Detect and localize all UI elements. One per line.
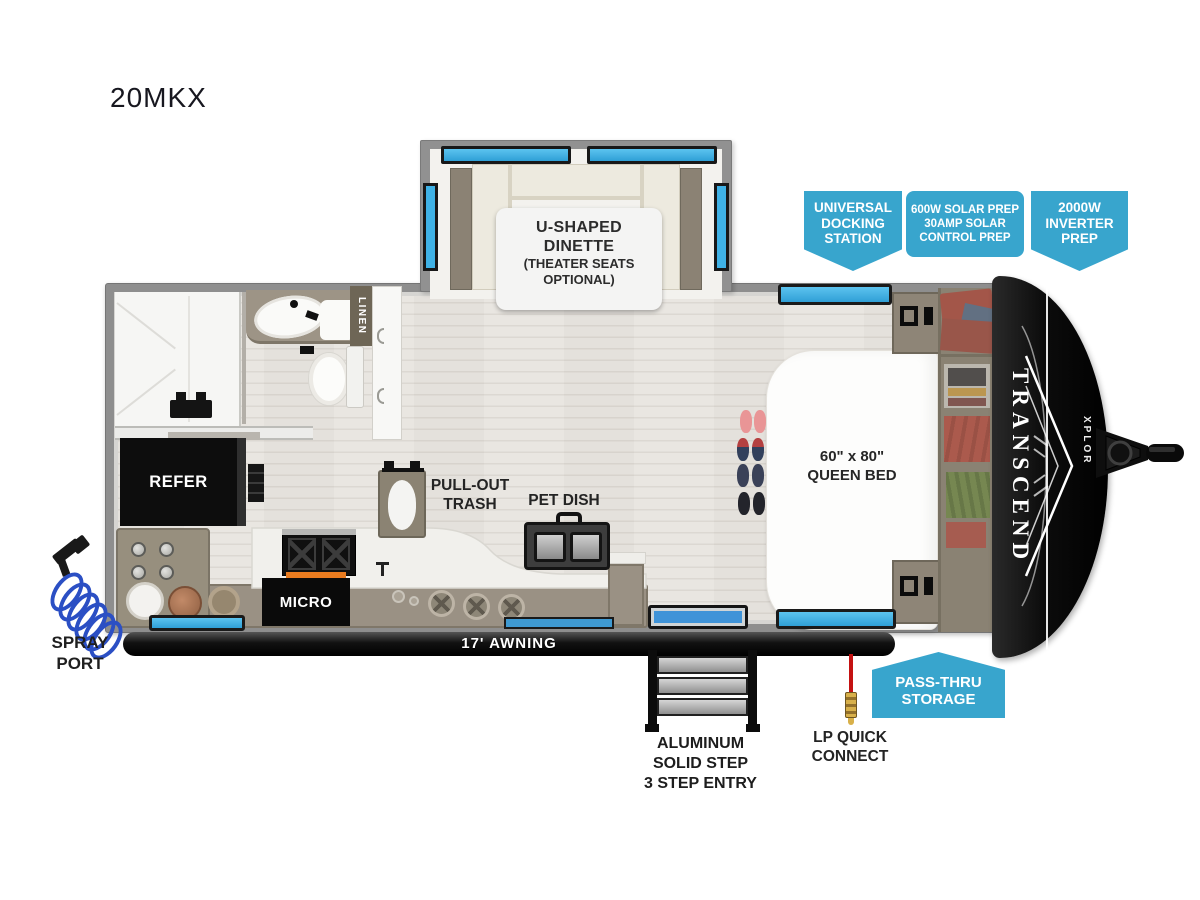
docking-line3: STATION xyxy=(804,231,902,247)
lp-hose-icon xyxy=(849,654,853,692)
callout-pass-thru-storage: PASS-THRU STORAGE xyxy=(872,652,1005,718)
cabinet-handle-icon xyxy=(900,306,918,326)
inverter-line3: PREP xyxy=(1031,231,1128,247)
sink-faucet-icon xyxy=(290,300,298,308)
step-entry-line2: SOLID STEP xyxy=(628,754,773,774)
inverter-line1: 2000W xyxy=(1031,200,1128,216)
solar-line2: 30AMP SOLAR xyxy=(906,217,1024,231)
spray-port-label: SPRAY PORT xyxy=(40,632,120,674)
dinette-label-line1: U-SHAPED xyxy=(496,218,662,237)
shoes-icon xyxy=(740,410,752,433)
kitchen-faucet-icon xyxy=(376,562,389,565)
docking-line2: DOCKING xyxy=(804,216,902,232)
sink-drain-icon xyxy=(409,596,419,606)
callout-inverter-prep: 2000W INVERTER PREP xyxy=(1031,191,1128,271)
entry-step-icon xyxy=(657,698,748,716)
stove-knob-icon xyxy=(159,542,174,557)
pull-out-trash-label: PULL-OUT TRASH xyxy=(426,476,514,514)
cabinet-handle-icon xyxy=(377,328,384,344)
stove-knob-icon xyxy=(159,565,174,580)
awning-bar: 17' AWNING xyxy=(123,632,895,656)
wall-vent-icon xyxy=(248,464,264,502)
kitchen-faucet-icon xyxy=(381,564,384,576)
cabinet-handle-icon xyxy=(377,388,384,404)
refrigerator-label: REFER xyxy=(120,438,246,526)
trash-handle-icon xyxy=(384,461,394,470)
pet-dish-label: PET DISH xyxy=(520,492,608,510)
docking-line1: UNIVERSAL xyxy=(804,200,902,216)
burner-grate-icon xyxy=(288,538,316,570)
burner-ring-icon xyxy=(428,590,455,617)
slideout-pillar xyxy=(680,168,702,290)
stove-knob-icon xyxy=(131,542,146,557)
entry-step-rail xyxy=(748,650,757,728)
inverter-line2: INVERTER xyxy=(1031,216,1128,232)
step-entry-label: ALUMINUM SOLID STEP 3 STEP ENTRY xyxy=(628,734,773,794)
dinette-label-line2: DINETTE xyxy=(496,237,662,256)
shoes-icon xyxy=(737,464,749,487)
slideout-pillar xyxy=(450,168,472,290)
callout-solar-prep: 600W SOLAR PREP 30AMP SOLAR CONTROL PREP xyxy=(906,191,1024,257)
window-icon xyxy=(441,146,571,164)
window-icon xyxy=(714,183,729,271)
range-control-strip xyxy=(282,529,356,535)
front-cap: TRANSCEND XPLOR xyxy=(992,276,1108,658)
pet-dish-handle-icon xyxy=(556,512,582,525)
lp-quick-connect-label: LP QUICK CONNECT xyxy=(800,728,900,766)
entry-step-icon xyxy=(657,656,748,674)
burner-grate-icon xyxy=(322,538,350,570)
solar-line3: CONTROL PREP xyxy=(906,231,1024,245)
bed-size-text: 60" x 80" xyxy=(767,447,937,466)
queen-bed-label: 60" x 80" QUEEN BED xyxy=(767,447,937,485)
pull-out-trash-line2: TRASH xyxy=(426,495,514,514)
window-icon xyxy=(423,183,438,271)
shoes-icon xyxy=(752,464,764,487)
window-icon xyxy=(587,146,717,164)
pet-bowl-icon xyxy=(570,532,602,562)
trash-handle-icon xyxy=(410,461,420,470)
entry-door-icon xyxy=(648,605,748,629)
spray-port-line2: PORT xyxy=(40,653,120,674)
linen-closet-label: LINEN xyxy=(350,286,372,346)
entry-step-icon xyxy=(657,677,748,695)
lp-label-line1: LP QUICK xyxy=(800,728,900,747)
solar-line1: 600W SOLAR PREP xyxy=(906,203,1024,217)
shoes-icon xyxy=(752,438,764,461)
hitch-tongue-icon xyxy=(1096,420,1186,486)
dinette-label-line3: (THEATER SEATS xyxy=(496,256,662,272)
pull-out-trash-line1: PULL-OUT xyxy=(426,476,514,495)
bed-type-text: QUEEN BED xyxy=(767,466,937,485)
stove-knob-icon xyxy=(131,565,146,580)
sub-brand-text: XPLOR xyxy=(1076,416,1092,516)
step-entry-line3: 3 STEP ENTRY xyxy=(628,774,773,794)
trash-bin-liner xyxy=(388,480,416,530)
cabinet-handle-icon xyxy=(924,307,933,325)
dinette-label-line4: OPTIONAL) xyxy=(496,272,662,288)
linen-cabinet xyxy=(372,286,402,440)
pass-thru-line1: PASS-THRU xyxy=(872,674,1005,691)
window-icon xyxy=(778,284,892,305)
brand-wing-icon xyxy=(1020,286,1084,646)
microwave-label: MICRO xyxy=(262,578,350,626)
toilet-icon xyxy=(308,352,350,406)
shoes-icon xyxy=(737,438,749,461)
step-foot xyxy=(746,724,760,732)
spray-port-line1: SPRAY xyxy=(40,632,120,653)
cabinet-handle-icon xyxy=(924,577,933,595)
entry-step-rail xyxy=(648,650,657,728)
pass-thru-line2: STORAGE xyxy=(872,691,1005,708)
lp-connector-icon xyxy=(845,692,857,718)
window-icon xyxy=(776,609,896,629)
step-foot xyxy=(645,724,659,732)
wardrobe-door-overlay xyxy=(938,288,996,632)
shoes-icon xyxy=(754,410,766,433)
window-icon xyxy=(149,615,245,631)
lp-connector-tip xyxy=(848,718,854,725)
lp-label-line2: CONNECT xyxy=(800,747,900,766)
callout-universal-docking-station: UNIVERSAL DOCKING STATION xyxy=(804,191,902,271)
kitchen-sink-bowl-icon xyxy=(208,586,240,618)
shower-faucet-icon xyxy=(170,400,212,418)
sink-drain-icon xyxy=(392,590,405,603)
vanity-accessory xyxy=(300,346,314,354)
pet-bowl-icon xyxy=(534,532,566,562)
dinette-label-card: U-SHAPED DINETTE (THEATER SEATS OPTIONAL… xyxy=(496,208,662,310)
model-title: 20MKX xyxy=(110,82,207,114)
step-entry-line1: ALUMINUM xyxy=(628,734,773,754)
shoes-icon xyxy=(738,492,750,515)
shoes-icon xyxy=(753,492,765,515)
toilet-tank xyxy=(346,346,364,408)
cabinet-handle-icon xyxy=(900,576,918,596)
window-icon xyxy=(504,617,614,629)
burner-ring-icon xyxy=(463,593,490,620)
floorplan-page: 20MKX LINEN REFER MICRO xyxy=(0,0,1200,900)
